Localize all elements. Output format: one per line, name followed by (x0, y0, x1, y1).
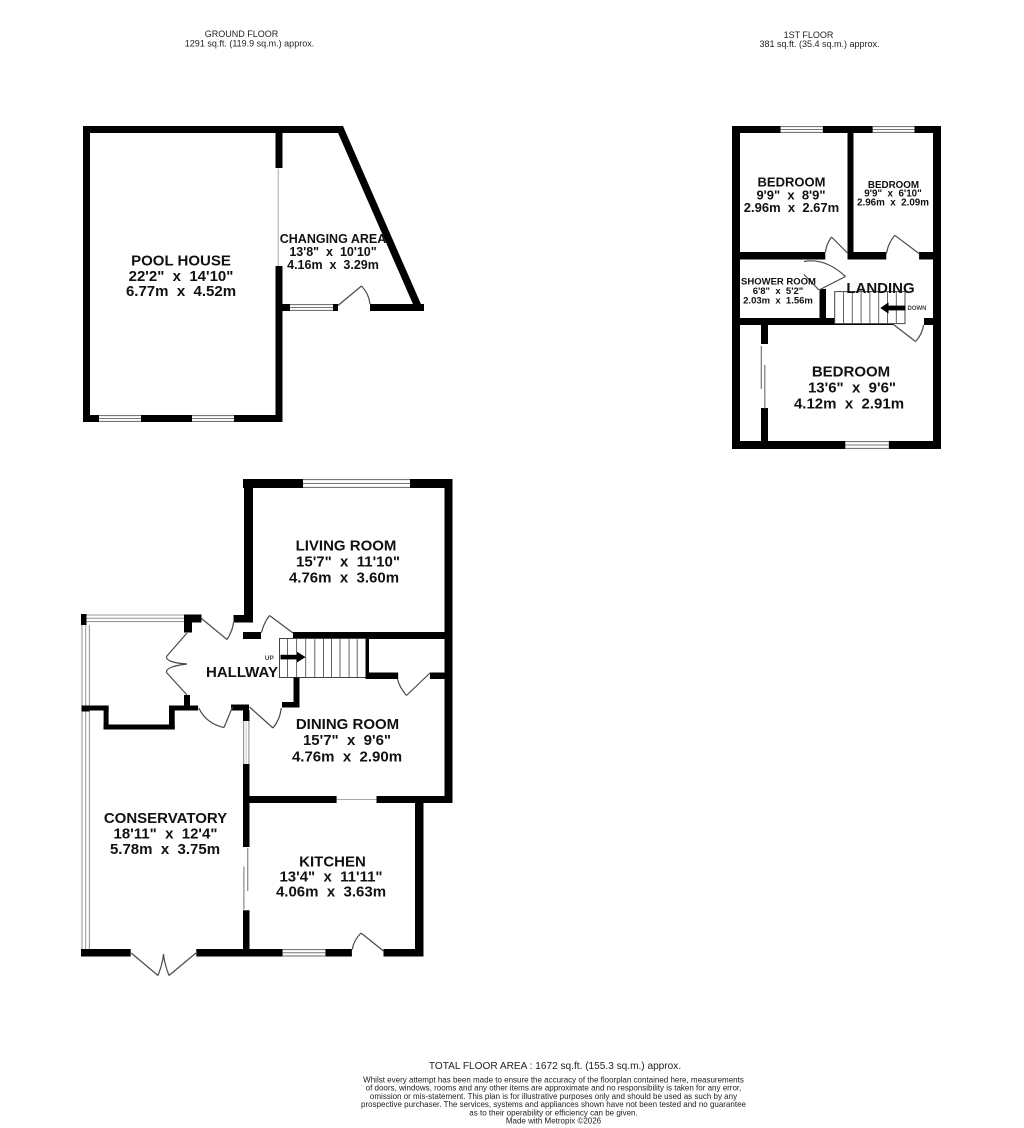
svg-text:BEDROOM: BEDROOM (812, 363, 890, 380)
svg-text:4.76m x 2.90m: 4.76m x 2.90m (292, 749, 402, 766)
svg-text:13'8" x 10'10": 13'8" x 10'10" (289, 245, 376, 259)
svg-text:18'11" x 12'4": 18'11" x 12'4" (114, 826, 218, 843)
svg-text:1291 sq.ft. (119.9 sq.m.) appr: 1291 sq.ft. (119.9 sq.m.) approx. (185, 39, 314, 49)
svg-text:4.12m x 2.91m: 4.12m x 2.91m (794, 395, 904, 412)
svg-text:6.77m x 4.52m: 6.77m x 4.52m (126, 283, 236, 300)
svg-text:2.96m x 2.09m: 2.96m x 2.09m (857, 197, 929, 208)
svg-text:CONSERVATORY: CONSERVATORY (104, 810, 227, 827)
svg-text:TOTAL FLOOR AREA : 1672 sq.ft.: TOTAL FLOOR AREA : 1672 sq.ft. (155.3 sq… (429, 1061, 681, 1072)
svg-text:DINING ROOM: DINING ROOM (296, 716, 399, 733)
svg-text:5.78m x 3.75m: 5.78m x 3.75m (110, 841, 220, 858)
svg-text:GROUND FLOOR: GROUND FLOOR (205, 29, 279, 39)
svg-text:UP: UP (265, 655, 275, 662)
svg-text:381 sq.ft. (35.4 sq.m.) approx: 381 sq.ft. (35.4 sq.m.) approx. (759, 39, 879, 49)
svg-text:4.76m x 3.60m: 4.76m x 3.60m (289, 569, 399, 586)
svg-text:LIVING ROOM: LIVING ROOM (296, 537, 397, 554)
svg-text:HALLWAY: HALLWAY (206, 664, 278, 681)
svg-text:4.06m x 3.63m: 4.06m x 3.63m (276, 883, 386, 900)
svg-text:CHANGING AREA: CHANGING AREA (280, 232, 386, 246)
svg-text:POOL HOUSE: POOL HOUSE (131, 253, 231, 270)
svg-text:15'7" x 11'10": 15'7" x 11'10" (296, 553, 400, 570)
svg-text:4.16m x 3.29m: 4.16m x 3.29m (287, 258, 379, 272)
svg-text:2.03m x 1.56m: 2.03m x 1.56m (743, 296, 813, 307)
svg-text:LANDING: LANDING (846, 280, 914, 297)
svg-text:15'7" x 9'6": 15'7" x 9'6" (303, 732, 391, 749)
svg-text:Made with Metropix ©2026: Made with Metropix ©2026 (506, 1117, 602, 1126)
svg-text:13'6" x 9'6": 13'6" x 9'6" (808, 379, 896, 396)
svg-text:DOWN: DOWN (908, 306, 927, 312)
svg-text:2.96m x 2.67m: 2.96m x 2.67m (744, 200, 839, 215)
